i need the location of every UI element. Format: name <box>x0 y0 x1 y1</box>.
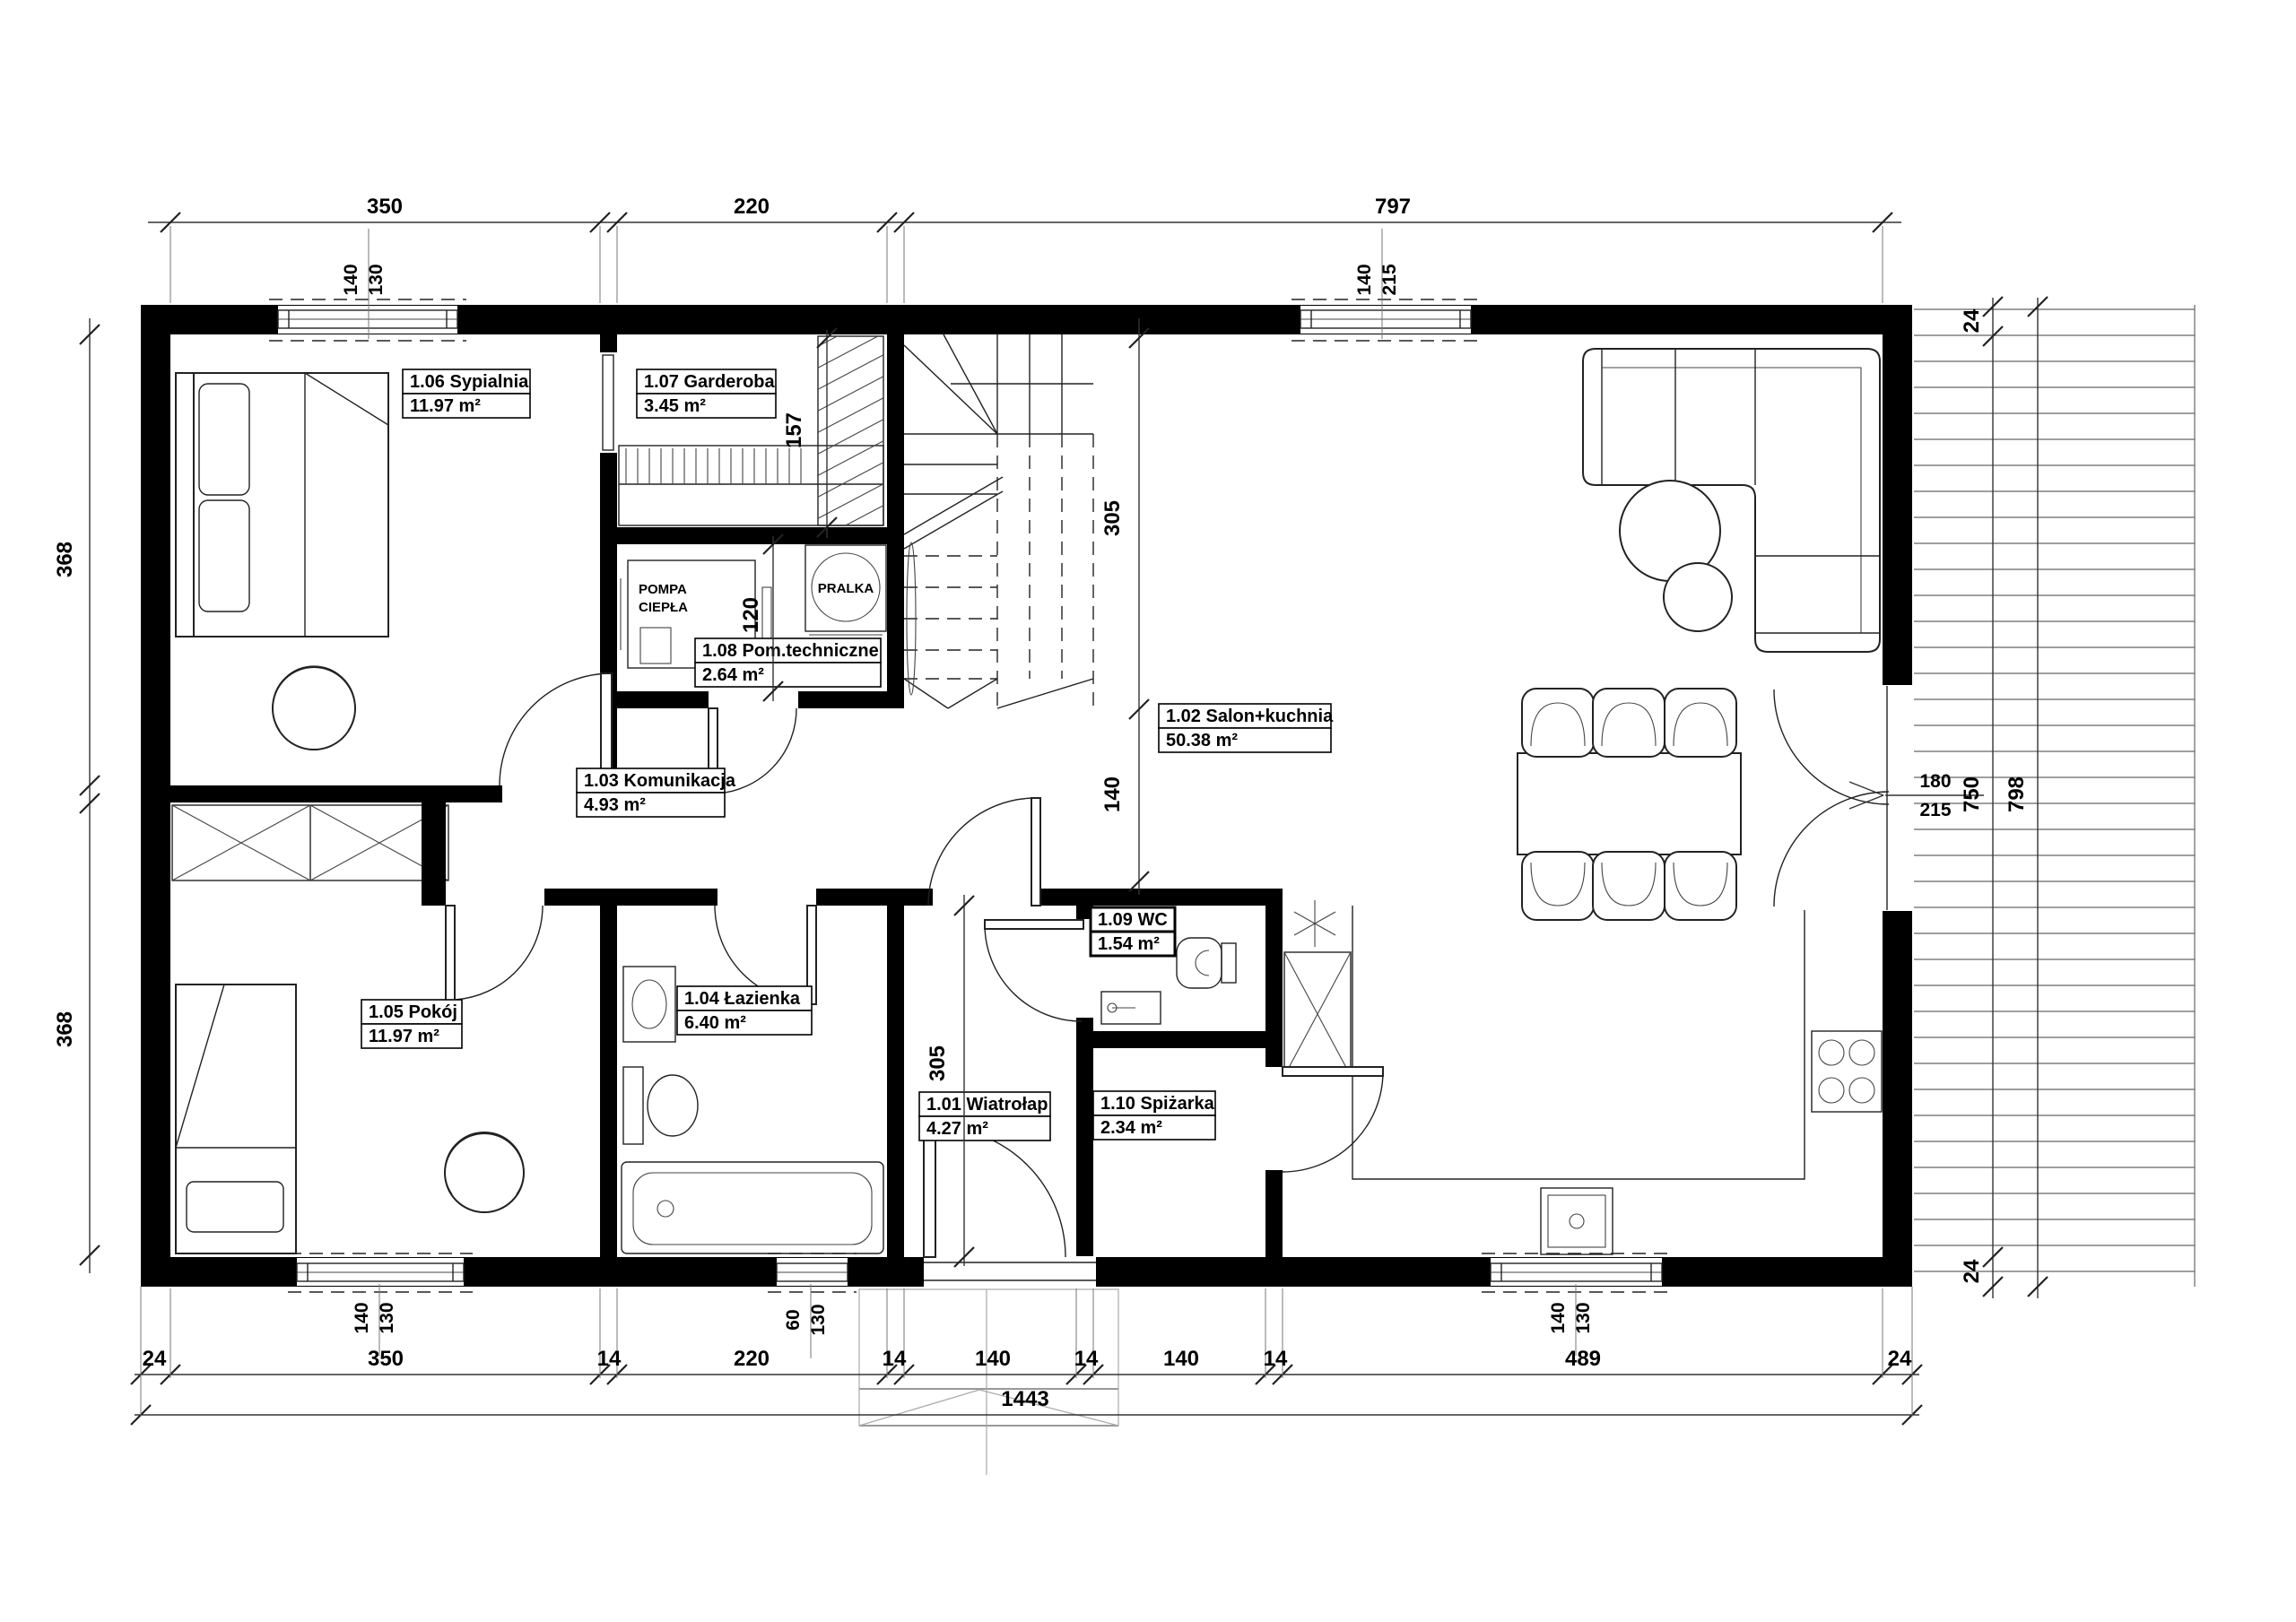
win-dim: 140 <box>341 264 361 295</box>
entry-steps <box>859 1289 1118 1475</box>
dim-right-24-bottom: 24 <box>1960 1259 1984 1283</box>
room-area: 1.54 m² <box>1098 934 1160 954</box>
dining-chair <box>1522 689 1594 757</box>
dim-bottom: 140 <box>1163 1347 1199 1371</box>
room-area: 11.97 m² <box>410 396 481 416</box>
dim-bottom: 24 <box>1888 1347 1912 1371</box>
single-bed <box>176 984 296 1253</box>
heat-pump-label-1: POMPA <box>639 582 687 597</box>
door-leaf-wc <box>985 920 1083 929</box>
win-dim: 130 <box>377 1302 397 1333</box>
door-leaf-wiatrolap <box>1031 798 1040 906</box>
entrance-door <box>924 1123 1096 1287</box>
door-leaf-pokoj <box>446 906 455 1002</box>
wc-toilet <box>1177 938 1236 988</box>
room-label-wc: 1.09 WC 1.54 m² <box>1091 907 1175 956</box>
armchair <box>445 1132 524 1212</box>
wall-exterior-right <box>1883 305 1912 686</box>
room-name: 1.10 Spiżarka <box>1100 1094 1215 1114</box>
room-label-pokoj: 1.05 Pokój 11.97 m² <box>361 1000 462 1048</box>
wall-exterior-left <box>141 305 170 1287</box>
win-dim: 140 <box>1548 1302 1569 1333</box>
room-name: 1.02 Salon+kuchnia <box>1166 707 1334 726</box>
room-area: 50.38 m² <box>1166 731 1238 750</box>
room-name: 1.08 Pom.techniczne <box>702 641 879 661</box>
built-in-wardrobe <box>172 805 448 880</box>
room-area: 3.45 m² <box>644 396 706 416</box>
dining-chair <box>1593 689 1665 757</box>
kitchen-cabinet-x <box>1284 952 1351 1076</box>
patio-double-door <box>1774 685 1912 911</box>
dim-bottom: 220 <box>734 1347 770 1371</box>
door-leaf <box>924 1123 935 1257</box>
dining-table <box>1518 753 1741 854</box>
room-area: 4.93 m² <box>584 795 646 815</box>
dim-305-wiatrolap: 305 <box>926 1045 950 1081</box>
hatch-lines <box>812 308 890 565</box>
floor-plan-page: POMPA CIEPŁA PRALKA <box>0 0 2296 1622</box>
win-dim: 140 <box>352 1302 372 1333</box>
room-label-wiatrolap: 1.01 Wiatrołap 4.27 m² <box>919 1092 1050 1141</box>
washbasin <box>623 967 675 1042</box>
dim-total-1443: 1443 <box>1001 1387 1048 1411</box>
dim-top-797: 797 <box>1375 195 1411 219</box>
win-dim: 130 <box>808 1304 829 1335</box>
heat-pump-label-2: CIEPŁA <box>639 600 688 615</box>
room-label-pomtech: 1.08 Pom.techniczne 2.64 m² <box>695 638 881 687</box>
dining-chair <box>1593 852 1665 920</box>
terrace-decking <box>1914 309 2195 1271</box>
room-area: 6.40 m² <box>684 1013 746 1033</box>
stair-cut-line <box>904 491 1003 549</box>
room-name: 1.07 Garderoba <box>644 372 776 392</box>
bathtub <box>622 1162 883 1253</box>
dim-right-24-top: 24 <box>1960 308 1984 333</box>
room-name: 1.04 Łazienka <box>684 989 801 1009</box>
staircase <box>904 334 1093 708</box>
dim-bottom: 489 <box>1565 1347 1601 1371</box>
room-label-spizarka: 1.10 Spiżarka 2.34 m² <box>1093 1091 1215 1140</box>
room-name: 1.01 Wiatrołap <box>926 1095 1048 1115</box>
dim-bottom: 14 <box>1074 1347 1099 1371</box>
dim-bottom: 14 <box>1264 1347 1288 1371</box>
room-area: 11.97 m² <box>369 1027 439 1046</box>
room-name: 1.05 Pokój <box>369 1002 457 1022</box>
toilet <box>623 1067 698 1144</box>
dim-140-salon: 140 <box>1100 776 1125 812</box>
dim-bottom: 140 <box>975 1347 1011 1371</box>
room-label-komunikacja: 1.03 Komunikacja 4.93 m² <box>577 768 736 817</box>
win-dim: 140 <box>1354 264 1375 295</box>
dim-bottom: 14 <box>597 1347 622 1371</box>
dim-top-350: 350 <box>367 195 403 219</box>
room-label-lazienka: 1.04 Łazienka 6.40 m² <box>677 986 812 1035</box>
dim-left-368a: 368 <box>53 542 77 577</box>
kitchen-sink <box>1541 1188 1613 1254</box>
room-label-garderoba: 1.07 Garderoba 3.45 m² <box>637 369 776 418</box>
double-bed <box>176 373 388 637</box>
bed-headboard <box>176 373 194 637</box>
dim-157: 157 <box>782 412 806 448</box>
washing-machine: PRALKA <box>805 545 886 635</box>
dim-bottom: 24 <box>143 1347 167 1371</box>
room-area: 4.27 m² <box>926 1119 988 1139</box>
floor-plan-canvas: POMPA CIEPŁA PRALKA <box>0 0 2296 1622</box>
dining-chair <box>1522 852 1594 920</box>
win-dim: 215 <box>1379 264 1400 295</box>
dining-chair <box>1665 852 1736 920</box>
dining-chair <box>1665 689 1736 757</box>
washer-label: PRALKA <box>818 581 874 596</box>
dim-right-798: 798 <box>2005 776 2029 812</box>
room-area: 2.34 m² <box>1100 1118 1162 1138</box>
win-dim: 130 <box>366 264 387 295</box>
wardrobe-shelving <box>619 308 890 565</box>
kitchen-counter <box>1352 906 1805 1179</box>
dim-right-750: 750 <box>1960 776 1984 812</box>
win-dim: 60 <box>783 1309 804 1330</box>
dim-left-368b: 368 <box>53 1011 77 1047</box>
room-label-salon: 1.02 Salon+kuchnia 50.38 m² <box>1159 704 1334 752</box>
cooktop <box>1812 1031 1882 1112</box>
room-area: 2.64 m² <box>702 665 764 685</box>
door-leaf-spizarka <box>1283 1067 1383 1076</box>
dim-bottom: 14 <box>883 1347 907 1371</box>
room-name: 1.09 WC <box>1098 910 1168 930</box>
room-name: 1.03 Komunikacja <box>584 771 736 791</box>
sink-symbol-star <box>1294 900 1335 947</box>
dim-bottom: 350 <box>368 1347 404 1371</box>
wall-exterior-right <box>1883 910 1912 1287</box>
dim-door-180: 180 <box>1919 771 1951 792</box>
armchair <box>273 666 355 750</box>
win-dim: 130 <box>1573 1302 1594 1333</box>
dim-305-salon: 305 <box>1100 500 1125 536</box>
interior-doors <box>446 355 1383 1172</box>
room-name: 1.06 Sypialnia <box>410 372 529 392</box>
wc-basin <box>1101 992 1161 1024</box>
dim-door-215: 215 <box>1919 800 1951 820</box>
pouf <box>1664 563 1732 631</box>
room-label-sypialnia: 1.06 Sypialnia 11.97 m² <box>403 369 530 418</box>
dim-120: 120 <box>739 597 763 633</box>
dim-top-220: 220 <box>734 195 770 219</box>
